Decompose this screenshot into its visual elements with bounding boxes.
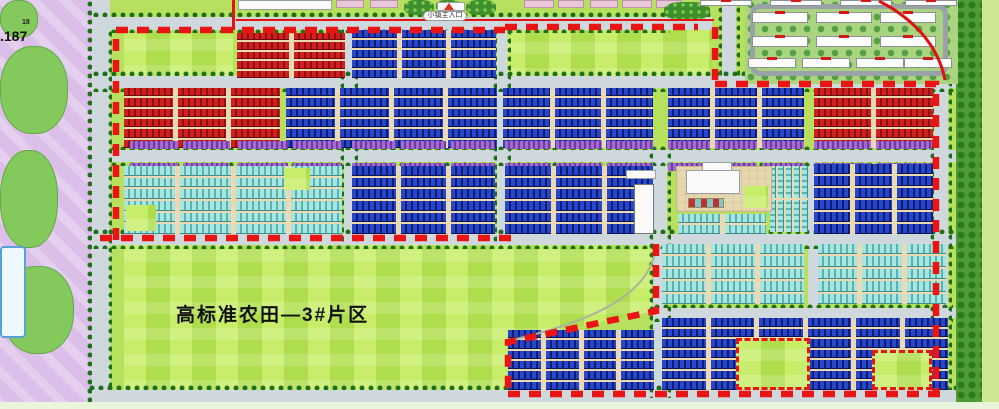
blue-building-row: [662, 339, 706, 348]
blue-building-row: [621, 361, 654, 369]
blue-building-row: [814, 224, 850, 234]
blue-building-row: [451, 201, 495, 211]
cyan-building-row: [907, 269, 946, 279]
cyan-building-row: [662, 269, 706, 279]
cyan-block-group: [662, 244, 804, 304]
roof-marker: [839, 11, 849, 14]
blue-building-row: [715, 119, 757, 127]
blue-building-row: [394, 129, 443, 137]
cyan-building-row: [180, 178, 231, 188]
cyan-building-row: [236, 178, 287, 188]
red-building-row: [178, 88, 227, 96]
blue-building-row: [621, 351, 654, 359]
red-building-row: [237, 33, 289, 40]
red-building-row: [876, 119, 933, 127]
civic-building: [686, 170, 740, 194]
blue-building-row: [546, 361, 579, 369]
blue-building-row: [715, 88, 757, 96]
blue-building-row: [451, 70, 496, 78]
blue-building-row: [606, 98, 653, 106]
cyan-building-row: [760, 244, 804, 254]
blue-building-row: [448, 98, 497, 106]
blue-building-row: [662, 371, 706, 380]
red-block-group: [814, 88, 933, 148]
blue-building-row: [555, 109, 602, 117]
red-building-row: [124, 129, 173, 137]
cyan-building-row: [711, 294, 755, 304]
blue-building-row: [352, 213, 396, 223]
tree-row: [87, 0, 92, 409]
cyan-building-row: [907, 244, 946, 254]
roof-marker: [903, 35, 913, 38]
blue-building-row: [508, 371, 541, 379]
red-building-row: [814, 98, 871, 106]
cyan-building-row: [291, 201, 342, 211]
blue-building-row: [905, 318, 949, 327]
blue-block-group: [352, 30, 496, 78]
blue-block-group: [814, 164, 933, 234]
cyan-building-row: [786, 166, 792, 198]
tree-row: [948, 80, 952, 390]
blue-building-row: [584, 382, 617, 390]
roof-marker: [839, 35, 849, 38]
blue-building-row: [352, 166, 396, 176]
blue-building-row: [546, 382, 579, 390]
roof-marker: [821, 57, 831, 60]
blue-building-row: [855, 164, 891, 174]
blue-building-row: [401, 213, 445, 223]
road-bottom: [88, 390, 999, 402]
cyan-building-row: [236, 201, 287, 211]
red-building-row: [294, 61, 346, 68]
blue-building-row: [286, 119, 335, 127]
roof-marker: [861, 0, 871, 2]
purple-building-row: [451, 141, 495, 149]
red-building-row: [178, 129, 227, 137]
red-building-row: [876, 109, 933, 117]
residential-building: [700, 0, 752, 6]
cyan-building-row: [794, 200, 800, 232]
purple-building-row: [183, 141, 231, 149]
red-building-row: [876, 129, 933, 137]
residential-building: [816, 36, 872, 47]
blue-building-row: [352, 178, 396, 188]
red-building-row: [814, 88, 871, 96]
roof-marker: [791, 0, 801, 2]
residential-building: [752, 12, 808, 23]
blue-building-row: [808, 318, 852, 327]
red-building-row: [178, 98, 227, 106]
bottom-strip: [0, 402, 999, 409]
cyan-building-row: [778, 166, 784, 198]
green-plot-2: [872, 350, 932, 390]
residential-building: [840, 0, 892, 6]
blue-building-row: [505, 201, 551, 211]
blue-building-row: [451, 213, 495, 223]
red-block-group: [237, 33, 345, 78]
blue-building-row: [402, 30, 447, 38]
blue-building-row: [762, 129, 804, 137]
blue-building-row: [897, 176, 933, 186]
blue-building-row: [621, 340, 654, 348]
cyan-building-row: [236, 166, 287, 176]
blue-building-row: [715, 129, 757, 137]
blue-building-row: [286, 88, 335, 96]
residential-building: [802, 58, 850, 68]
blue-building-row: [662, 381, 706, 390]
site-plan-map: 高标准农田—3#片区 小镇主入口 .187 18: [0, 0, 999, 409]
red-building-row: [237, 42, 289, 49]
blue-building-row: [505, 224, 551, 234]
blue-building-row: [556, 178, 602, 188]
cyan-building-row: [711, 244, 755, 254]
blue-building-row: [606, 129, 653, 137]
roof-marker: [923, 57, 933, 60]
purple-building-row: [668, 141, 710, 149]
blue-building-row: [897, 200, 933, 210]
red-building-row: [124, 98, 173, 106]
top-slab: [558, 0, 584, 8]
cyan-building-row: [236, 189, 287, 199]
blue-building-row: [808, 350, 852, 359]
blue-building-row: [394, 88, 443, 96]
blue-building-row: [621, 371, 654, 379]
greenbelt-right: [956, 0, 982, 409]
roof-marker: [775, 35, 785, 38]
blue-block-group: [503, 88, 653, 148]
blue-building-row: [448, 119, 497, 127]
cyan-building-row: [662, 281, 706, 291]
cyan-building-row: [678, 214, 720, 223]
purple-strip: [814, 141, 932, 149]
tree-row: [653, 304, 953, 308]
blue-building-row: [556, 166, 602, 176]
blue-building-row: [352, 224, 396, 234]
blue-building-row: [555, 88, 602, 96]
cyan-building-row: [818, 256, 857, 266]
purple-building-row: [876, 141, 933, 149]
red-building-row: [124, 88, 173, 96]
blue-building-row: [897, 212, 933, 222]
blue-building-row: [503, 119, 550, 127]
blue-building-row: [584, 330, 617, 338]
residential-building: [752, 36, 808, 47]
blue-building-row: [503, 109, 550, 117]
cyan-building-row: [711, 269, 755, 279]
blue-building-row: [897, 188, 933, 198]
blue-building-row: [856, 339, 900, 348]
blue-building-row: [448, 88, 497, 96]
blue-block-group: [668, 88, 804, 148]
blue-building-row: [814, 164, 850, 174]
red-building-row: [231, 88, 280, 96]
blue-building-row: [584, 371, 617, 379]
red-block-group: [124, 88, 280, 148]
blue-building-row: [715, 109, 757, 117]
blue-building-row: [662, 329, 706, 338]
residential-building: [880, 12, 936, 23]
blue-building-row: [546, 340, 579, 348]
exhibition-building: [634, 184, 654, 234]
residential-building: [816, 12, 872, 23]
blue-building-row: [621, 330, 654, 338]
blue-building-row: [401, 166, 445, 176]
roof-marker: [926, 0, 936, 2]
cyan-building-row: [291, 189, 342, 199]
blue-building-row: [286, 129, 335, 137]
red-building-row: [876, 88, 933, 96]
park-blob-1: [0, 46, 68, 134]
cyan-building-row: [802, 200, 808, 232]
cyan-building-row: [662, 256, 706, 266]
purple-building-row: [607, 141, 653, 149]
cyan-building-row: [760, 269, 804, 279]
red-building-row: [876, 98, 933, 106]
purple-strip: [238, 141, 342, 149]
top-building: [238, 0, 332, 10]
red-building-row: [231, 129, 280, 137]
blue-building-row: [451, 60, 496, 68]
blue-building-row: [759, 329, 803, 338]
cyan-building-row: [180, 224, 231, 234]
blue-building-row: [402, 70, 447, 78]
blue-building-row: [546, 351, 579, 359]
purple-building-row: [762, 141, 804, 149]
civic-green: [744, 186, 768, 208]
park-blob-2: [0, 150, 58, 248]
blue-building-row: [808, 381, 852, 390]
cyan-building-row: [180, 166, 231, 176]
cyan-building-row: [778, 200, 784, 232]
farmland-zone-label: 高标准农田—3#片区: [176, 300, 369, 327]
red-building-row: [294, 71, 346, 78]
blue-building-row: [668, 119, 710, 127]
blue-building-row: [808, 371, 852, 380]
blue-building-row: [814, 188, 850, 198]
cyan-building-row: [818, 281, 857, 291]
blue-building-row: [503, 129, 550, 137]
blue-building-row: [451, 50, 496, 58]
cyan-building-row: [711, 281, 755, 291]
blue-building-row: [584, 361, 617, 369]
cyan-building-row: [236, 224, 287, 234]
tree-row: [736, 6, 740, 78]
cyan-building-row: [794, 166, 800, 198]
civic-wing: [702, 162, 732, 171]
cyan-block-group: [678, 214, 766, 234]
cyan-block-group: [770, 166, 808, 232]
cyan-building-row: [725, 225, 767, 234]
cyan-building-row: [907, 281, 946, 291]
road-h2: [110, 150, 958, 162]
blue-building-row: [762, 88, 804, 96]
roof-marker: [875, 57, 885, 60]
red-building-row: [124, 119, 173, 127]
cyan-building-row: [760, 281, 804, 291]
purple-building-row: [814, 141, 871, 149]
blue-building-row: [855, 212, 891, 222]
blue-building-row: [352, 60, 397, 68]
cyan-building-row: [862, 256, 901, 266]
blue-building-row: [546, 371, 579, 379]
purple-strip: [352, 141, 495, 149]
red-line-v: [232, 0, 235, 30]
blue-building-row: [584, 340, 617, 348]
cyan-building-row: [180, 201, 231, 211]
blue-building-row: [451, 224, 495, 234]
main-entrance-label: 小镇主入口: [423, 11, 467, 21]
blue-building-row: [286, 98, 335, 106]
purple-strip: [505, 141, 653, 149]
blue-building-row: [668, 88, 710, 96]
purple-building-row: [352, 141, 396, 149]
cyan-building-row: [862, 244, 901, 254]
top-slab: [622, 0, 652, 8]
blue-building-row: [808, 339, 852, 348]
cyan-building-row: [180, 189, 231, 199]
residential-building: [770, 0, 822, 6]
cyan-building-row: [678, 225, 720, 234]
road-h4: [653, 308, 958, 318]
blue-building-row: [855, 176, 891, 186]
blue-building-row: [662, 360, 706, 369]
top-slab: [336, 0, 364, 8]
edge-lawn: [982, 0, 999, 409]
blue-building-row: [668, 129, 710, 137]
blue-building-row: [556, 189, 602, 199]
tree-row: [92, 12, 712, 17]
cyan-building-row: [818, 244, 857, 254]
blue-building-row: [715, 98, 757, 106]
purple-building-row: [715, 141, 757, 149]
blue-building-row: [508, 330, 541, 338]
residential-building: [904, 58, 952, 68]
blue-building-row: [606, 119, 653, 127]
purple-building-row: [238, 141, 288, 149]
purple-building-row: [505, 141, 551, 149]
blue-building-row: [855, 224, 891, 234]
blue-building-row: [606, 88, 653, 96]
cyan-building-row: [862, 294, 901, 304]
cyan-building-row: [907, 294, 946, 304]
red-building-row: [231, 119, 280, 127]
blue-building-row: [402, 40, 447, 48]
blue-building-row: [762, 119, 804, 127]
purple-strip: [130, 141, 230, 149]
exhibition-wing: [626, 170, 656, 179]
tree-row: [718, 6, 722, 78]
blue-building-row: [352, 40, 397, 48]
blue-building-row: [394, 119, 443, 127]
blue-building-row: [340, 129, 389, 137]
blue-building-row: [808, 360, 852, 369]
residential-building: [880, 36, 936, 47]
red-building-row: [814, 119, 871, 127]
blue-building-row: [508, 340, 541, 348]
blue-building-row: [352, 30, 397, 38]
blue-building-row: [451, 178, 495, 188]
pool: [0, 246, 26, 338]
blue-building-row: [556, 213, 602, 223]
blue-building-row: [451, 189, 495, 199]
cyan-building-row: [862, 269, 901, 279]
green-inset-1: [126, 205, 156, 231]
roof-marker: [903, 11, 913, 14]
blue-building-row: [505, 166, 551, 176]
cyan-building-row: [236, 213, 287, 223]
blue-building-row: [508, 382, 541, 390]
cyan-building-row: [818, 269, 857, 279]
cyan-building-row: [725, 214, 767, 223]
blue-building-row: [584, 351, 617, 359]
red-building-row: [178, 119, 227, 127]
blue-building-row: [352, 70, 397, 78]
blue-building-row: [606, 109, 653, 117]
red-building-row: [294, 52, 346, 59]
blue-building-row: [759, 318, 803, 327]
blue-building-row: [451, 166, 495, 176]
blue-building-row: [855, 188, 891, 198]
blue-building-row: [286, 109, 335, 117]
blue-building-row: [668, 109, 710, 117]
red-building-row: [294, 42, 346, 49]
blue-building-row: [451, 30, 496, 38]
cyan-building-row: [662, 294, 706, 304]
red-building-row: [294, 33, 346, 40]
red-building-row: [231, 98, 280, 106]
road-res-access: [722, 6, 736, 78]
green-plot-1: [736, 338, 810, 390]
green-inset-2: [284, 168, 310, 190]
blue-building-row: [503, 98, 550, 106]
blue-building-row: [505, 213, 551, 223]
blue-building-row: [451, 40, 496, 48]
blue-building-row: [556, 201, 602, 211]
blue-building-row: [711, 329, 755, 338]
roof-marker: [721, 0, 731, 2]
civic-checker: [688, 198, 724, 208]
cyan-building-row: [662, 244, 706, 254]
blue-building-row: [897, 224, 933, 234]
blue-building-row: [503, 88, 550, 96]
blue-building-row: [814, 212, 850, 222]
roof-marker: [775, 11, 785, 14]
cyan-building-row: [180, 213, 231, 223]
blue-building-row: [711, 318, 755, 327]
blue-building-row: [808, 329, 852, 338]
cyan-building-row: [291, 213, 342, 223]
red-building-row: [178, 109, 227, 117]
red-building-row: [237, 71, 289, 78]
cyan-building-row: [291, 224, 342, 234]
blue-building-row: [555, 119, 602, 127]
blue-building-row: [505, 189, 551, 199]
cyan-block-group: [818, 244, 946, 304]
purple-building-row: [293, 141, 343, 149]
blue-building-row: [855, 200, 891, 210]
blue-block-group: [286, 88, 497, 148]
tree-row: [108, 30, 112, 388]
blue-building-row: [508, 351, 541, 359]
blue-building-row: [546, 330, 579, 338]
red-building-row: [237, 52, 289, 59]
blue-building-row: [856, 318, 900, 327]
residential-building: [748, 58, 796, 68]
blue-building-row: [662, 350, 706, 359]
entrance-marker-icon: [444, 3, 454, 10]
red-building-row: [814, 129, 871, 137]
blue-building-row: [621, 382, 654, 390]
